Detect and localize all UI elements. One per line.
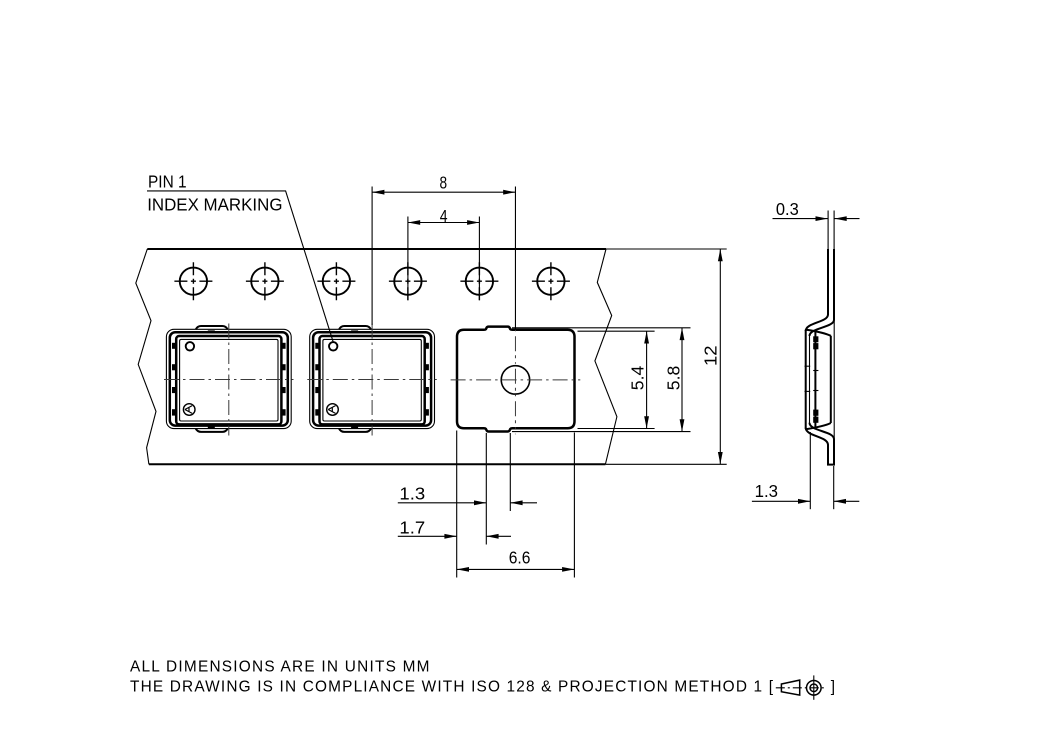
svg-text:]: ] [831, 678, 835, 695]
svg-text:5.4: 5.4 [628, 366, 648, 391]
svg-text:6.6: 6.6 [509, 548, 531, 568]
svg-text:12: 12 [700, 346, 720, 367]
svg-text:8: 8 [440, 173, 448, 193]
svg-text:5.8: 5.8 [664, 366, 684, 391]
svg-text:1.7: 1.7 [399, 517, 425, 537]
svg-text:0.3: 0.3 [776, 199, 799, 219]
svg-text:1.3: 1.3 [755, 481, 779, 501]
svg-text:4: 4 [440, 206, 448, 226]
svg-text:PIN 1: PIN 1 [148, 172, 187, 192]
svg-text:1.3: 1.3 [399, 483, 425, 503]
svg-text:ALL DIMENSIONS ARE IN UNITS MM: ALL DIMENSIONS ARE IN UNITS MM [130, 659, 430, 676]
svg-text:INDEX MARKING: INDEX MARKING [147, 195, 282, 215]
svg-text:THE DRAWING IS IN COMPLIANCE W: THE DRAWING IS IN COMPLIANCE WITH ISO 12… [130, 678, 774, 695]
